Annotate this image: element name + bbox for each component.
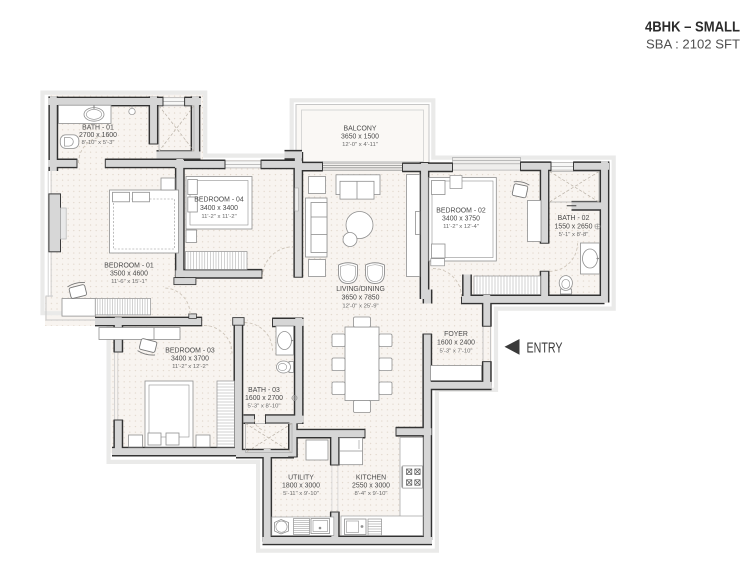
svg-text:LIVING/DINING: LIVING/DINING (336, 286, 385, 293)
svg-text:1600 x 2700: 1600 x 2700 (245, 395, 283, 402)
svg-text:UTILITY: UTILITY (288, 475, 314, 482)
svg-text:BATH - 01: BATH - 01 (82, 124, 114, 131)
svg-text:5'-3" x 7'-10": 5'-3" x 7'-10" (440, 349, 473, 355)
svg-text:12'-0" x 4'-11": 12'-0" x 4'-11" (342, 142, 378, 148)
svg-text:BATH - 02: BATH - 02 (558, 215, 590, 222)
svg-text:11'-2" x 12'-2": 11'-2" x 12'-2" (172, 364, 208, 370)
svg-text:BALCONY: BALCONY (344, 126, 377, 133)
svg-text:11'-2" x 12'-4": 11'-2" x 12'-4" (443, 224, 479, 230)
svg-text:3650 x 1500: 3650 x 1500 (341, 134, 379, 141)
svg-text:3400 x 3700: 3400 x 3700 (171, 356, 209, 363)
svg-text:2550 x 3000: 2550 x 3000 (352, 483, 390, 490)
svg-text:11'-6" x 15'-1": 11'-6" x 15'-1" (111, 279, 147, 285)
svg-text:12'-0" x 25'-9": 12'-0" x 25'-9" (342, 304, 378, 310)
svg-text:BEDROOM - 02: BEDROOM - 02 (436, 208, 486, 215)
svg-text:BEDROOM - 03: BEDROOM - 03 (165, 348, 215, 355)
svg-text:3650 x 7850: 3650 x 7850 (342, 295, 380, 302)
svg-text:5'-11" x 9'-10": 5'-11" x 9'-10" (283, 491, 319, 497)
svg-text:BATH - 03: BATH - 03 (248, 387, 280, 394)
svg-text:KITCHEN: KITCHEN (356, 475, 386, 482)
svg-text:SBA : 2102 SFT: SBA : 2102 SFT (646, 37, 740, 52)
svg-text:5'-1" x 8'-8": 5'-1" x 8'-8" (559, 232, 589, 238)
svg-text:8'-10" x 5'-3": 8'-10" x 5'-3" (82, 140, 115, 146)
svg-text:8'-4" x 9'-10": 8'-4" x 9'-10" (355, 491, 388, 497)
svg-text:BEDROOM - 01: BEDROOM - 01 (104, 263, 154, 270)
svg-text:3400 x 3400: 3400 x 3400 (200, 205, 238, 212)
svg-text:BEDROOM - 04: BEDROOM - 04 (194, 197, 244, 204)
svg-text:FOYER: FOYER (444, 331, 468, 338)
svg-text:5'-3" x 8'-10": 5'-3" x 8'-10" (248, 404, 281, 410)
svg-text:1550 x 2650: 1550 x 2650 (555, 224, 593, 231)
svg-text:3400 x 3750: 3400 x 3750 (442, 216, 480, 223)
svg-text:4BHK – SMALL: 4BHK – SMALL (645, 19, 740, 36)
svg-text:3500 x 4600: 3500 x 4600 (110, 271, 148, 278)
svg-text:2700 x 1600: 2700 x 1600 (79, 132, 117, 139)
svg-text:ENTRY: ENTRY (527, 340, 563, 356)
svg-text:1800 x 3000: 1800 x 3000 (282, 483, 320, 490)
svg-text:1600 x 2400: 1600 x 2400 (437, 340, 475, 347)
svg-text:11'-2" x 11'-2": 11'-2" x 11'-2" (201, 214, 236, 220)
